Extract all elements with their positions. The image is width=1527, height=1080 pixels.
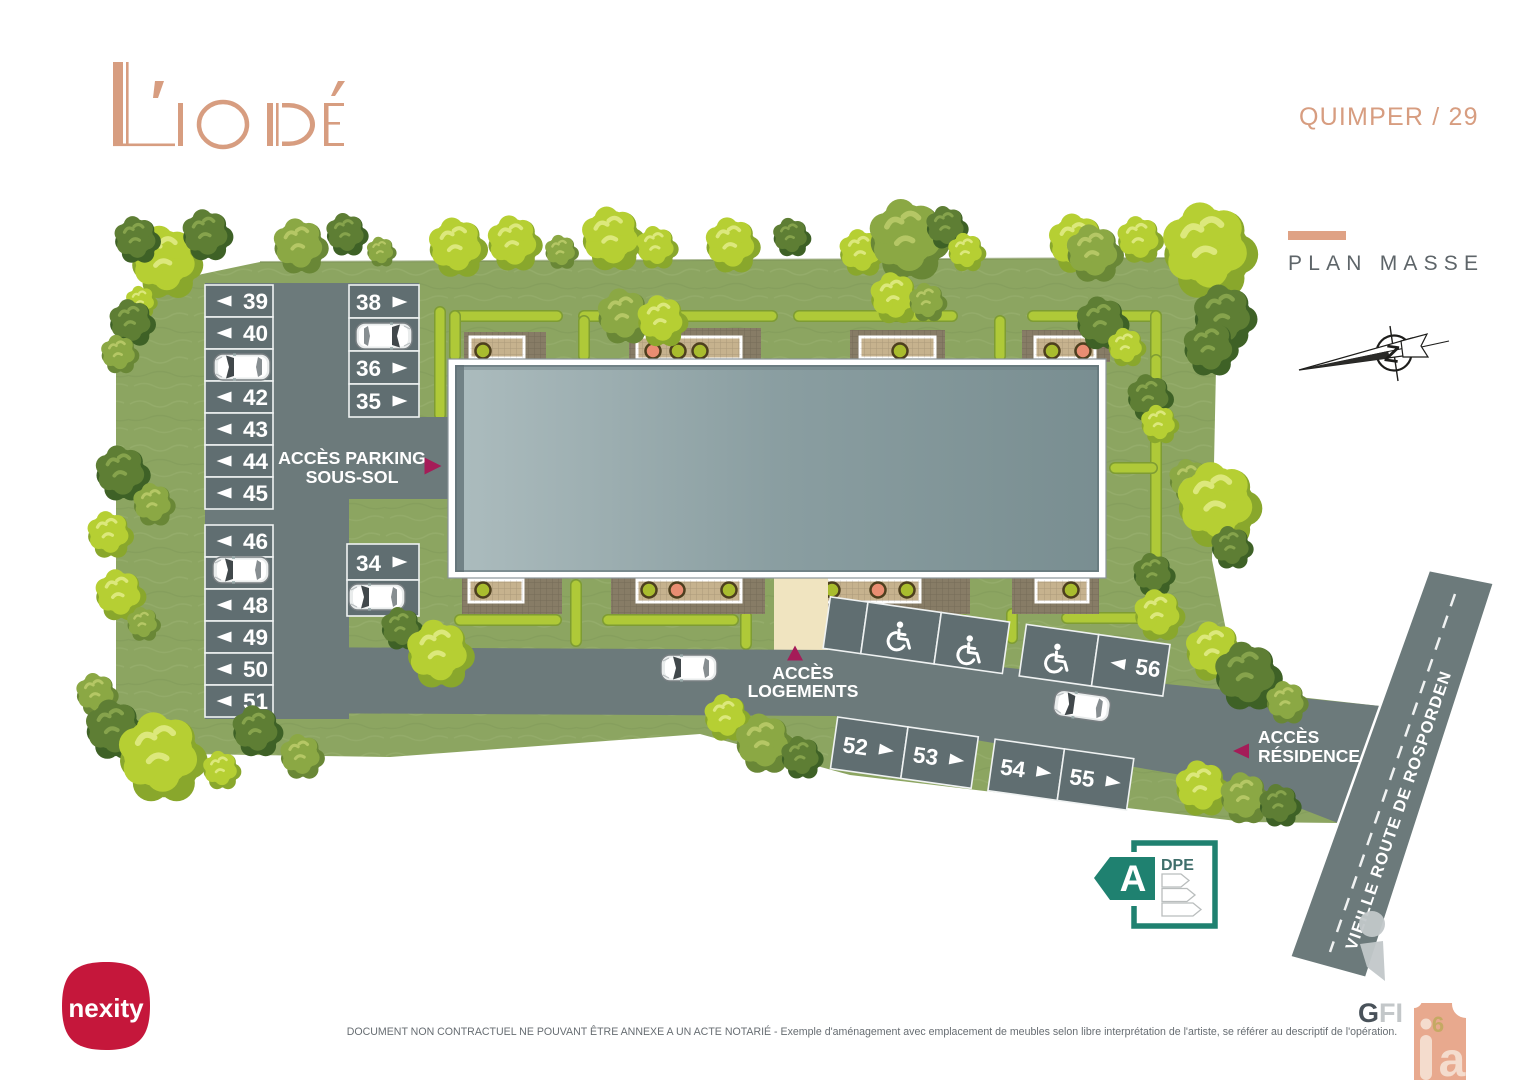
svg-text:40: 40 <box>243 321 268 346</box>
svg-text:RÉSIDENCE: RÉSIDENCE <box>1258 745 1360 766</box>
svg-text:43: 43 <box>243 417 268 442</box>
svg-text:nexity: nexity <box>68 993 144 1023</box>
svg-text:46: 46 <box>243 529 268 554</box>
svg-text:G: G <box>1358 998 1379 1028</box>
svg-text:35: 35 <box>356 389 381 414</box>
svg-text:56: 56 <box>1134 654 1162 682</box>
svg-text:50: 50 <box>243 657 268 682</box>
svg-text:45: 45 <box>243 481 268 506</box>
svg-text:LOGEMENTS: LOGEMENTS <box>748 681 859 701</box>
svg-text:ACCÈS PARKING: ACCÈS PARKING <box>278 447 426 468</box>
svg-text:53: 53 <box>911 742 939 770</box>
svg-text:48: 48 <box>243 593 268 618</box>
svg-text:55: 55 <box>1068 764 1096 792</box>
svg-text:36: 36 <box>356 356 381 381</box>
svg-text:FI: FI <box>1379 998 1403 1028</box>
svg-text:52: 52 <box>841 732 869 760</box>
svg-text:ACCÈS: ACCÈS <box>772 662 833 683</box>
svg-text:a: a <box>1439 1034 1466 1080</box>
svg-text:SOUS-SOL: SOUS-SOL <box>306 467 399 487</box>
svg-text:DOCUMENT NON CONTRACTUEL NE PO: DOCUMENT NON CONTRACTUEL NE POUVANT ÊTRE… <box>347 1025 1398 1038</box>
svg-text:44: 44 <box>243 449 269 474</box>
svg-text:PLAN MASSE: PLAN MASSE <box>1288 252 1484 275</box>
svg-text:49: 49 <box>243 625 268 650</box>
svg-text:54: 54 <box>999 754 1028 782</box>
svg-text:38: 38 <box>356 290 381 315</box>
svg-text:DPE: DPE <box>1161 857 1194 874</box>
svg-text:34: 34 <box>356 551 382 576</box>
svg-text:39: 39 <box>243 289 268 314</box>
svg-text:A: A <box>1120 858 1147 899</box>
svg-text:ACCÈS: ACCÈS <box>1258 726 1319 747</box>
svg-text:QUIMPER / 29: QUIMPER / 29 <box>1299 103 1479 131</box>
svg-text:42: 42 <box>243 385 268 410</box>
